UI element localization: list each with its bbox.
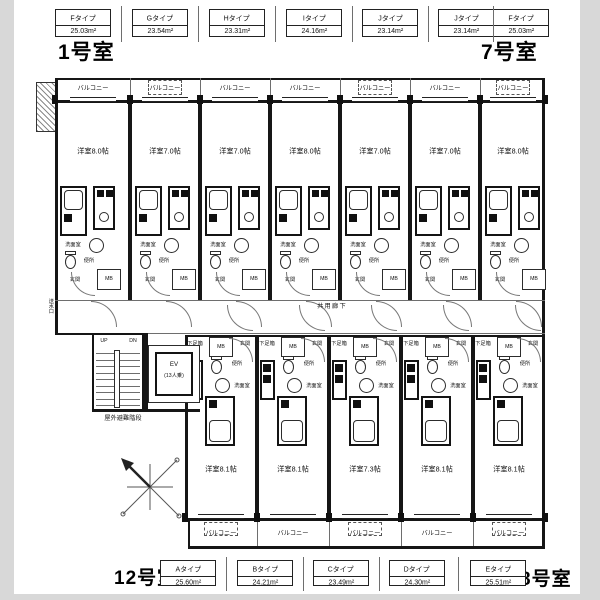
- unit-type-area: 23.49m²: [328, 579, 354, 587]
- type-separator-line: [303, 557, 304, 591]
- unit-type-label: Aタイプ: [175, 563, 201, 574]
- balcony-window: [270, 514, 316, 519]
- unit-type-area: 24.16m²: [301, 28, 327, 36]
- unit-type-label: Iタイプ: [303, 12, 326, 23]
- meter-box-label: MB: [320, 276, 328, 281]
- bath-fixture: [209, 214, 217, 222]
- ac-unit-outline: [496, 80, 530, 95]
- left-connect-wall: [55, 333, 92, 335]
- toilet-label: 便所: [159, 258, 169, 263]
- balcony-label: バルコニー: [290, 86, 321, 92]
- wash-basin: [514, 238, 529, 253]
- top-type-name-row: Iタイプ: [287, 10, 341, 26]
- unit-type-label: Hタイプ: [224, 12, 250, 23]
- unit-type-area: 24.21m²: [252, 579, 278, 587]
- stove-burner: [407, 364, 415, 372]
- stove-burner: [461, 190, 468, 197]
- wall-pier: [52, 95, 58, 104]
- door-swing-arc: [227, 305, 253, 331]
- unit-divider-wall: [478, 100, 482, 300]
- top-type-box: Fタイプ25.03m²: [493, 9, 549, 37]
- outer-wall-right: [542, 78, 545, 548]
- top-type-box: Gタイプ23.54m²: [132, 9, 188, 37]
- balcony-side-wall: [188, 520, 190, 548]
- balcony-label: バルコニー: [430, 86, 461, 92]
- balcony-side-wall: [543, 520, 545, 548]
- room-label: 洋室7.3帖: [349, 466, 381, 473]
- unit-divider-wall: [399, 335, 403, 518]
- balcony-window: [198, 514, 244, 519]
- stove-burner: [321, 190, 328, 197]
- toilet-bowl: [140, 255, 151, 269]
- stove-burner: [452, 190, 459, 197]
- kitchen-sink: [524, 212, 534, 222]
- type-separator-line: [352, 6, 353, 42]
- top-type-area-row: 23.54m²: [133, 26, 187, 37]
- door-swing-arc: [443, 305, 469, 331]
- type-separator-line: [275, 6, 276, 42]
- wall-pier-stub: [36, 82, 56, 132]
- stove-burner: [172, 190, 179, 197]
- washroom-label: 洗面室: [234, 383, 250, 388]
- kitchen-sink: [244, 212, 254, 222]
- outdoor-stairs-label: 屋外避難階段: [104, 416, 141, 422]
- balcony-divider: [401, 520, 402, 546]
- balcony-label: バルコニー: [220, 86, 251, 92]
- washroom-label: 洗面室: [450, 383, 466, 388]
- unit-divider-wall: [198, 100, 202, 300]
- stove-burner: [106, 190, 113, 197]
- stove-burner: [407, 375, 415, 383]
- room-label: 洋室8.0帖: [77, 148, 109, 155]
- bath-fixture: [425, 400, 433, 408]
- meter-box-label: MB: [105, 276, 113, 281]
- bath-fixture: [353, 400, 361, 408]
- toilet-label: 便所: [520, 361, 530, 366]
- outer-wall-top: [55, 78, 545, 80]
- stove-burner: [263, 375, 271, 383]
- toilet-label: 便所: [304, 361, 314, 366]
- bathtub: [209, 420, 231, 442]
- bottom-type-box: Aタイプ25.60m²: [160, 560, 216, 586]
- type-separator-line: [198, 6, 199, 42]
- room-label: 洋室7.0帖: [429, 148, 461, 155]
- kitchen-sink: [174, 212, 184, 222]
- door-swing-arc: [146, 272, 170, 296]
- bottom-type-area-row: 25.51m²: [471, 577, 525, 588]
- bottom-type-box: Bタイプ24.21m²: [237, 560, 293, 586]
- unit-type-label: Fタイプ: [70, 12, 95, 23]
- unit-divider-wall: [327, 335, 331, 518]
- bottom-type-name-row: Eタイプ: [471, 561, 525, 577]
- top-type-name-row: Fタイプ: [56, 10, 110, 26]
- toilet-label: 便所: [439, 258, 449, 263]
- balcony-label: バルコニー: [422, 531, 453, 537]
- top-type-box: Jタイプ23.14m²: [438, 9, 494, 37]
- balcony-window: [486, 514, 532, 519]
- door-swing-arc: [496, 272, 520, 296]
- bath-fixture: [349, 214, 357, 222]
- top-type-name-row: Gタイプ: [133, 10, 187, 26]
- toilet-bowl: [499, 360, 510, 374]
- balcony-window: [70, 97, 116, 102]
- meter-box-label: MB: [460, 276, 468, 281]
- bottom-type-box: Cタイプ23.49m²: [313, 560, 369, 586]
- ac-unit-outline: [148, 80, 182, 95]
- wall-pier: [127, 95, 133, 104]
- stove-burner: [522, 190, 529, 197]
- toilet-label: 便所: [369, 258, 379, 263]
- room-label: 洋室7.0帖: [219, 148, 251, 155]
- top-type-box: Hタイプ23.31m²: [209, 9, 265, 37]
- wash-basin: [431, 378, 446, 393]
- wall-pier: [337, 95, 343, 104]
- elevator-capacity-label: (13人乗): [164, 373, 184, 378]
- top-type-name-row: Jタイプ: [363, 10, 417, 26]
- toilet-bowl: [280, 255, 291, 269]
- washroom-label: 洗面室: [522, 383, 538, 388]
- door-swing-arc: [216, 272, 240, 296]
- top-type-box: Jタイプ23.14m²: [362, 9, 418, 37]
- type-separator-line: [428, 6, 429, 42]
- unit-type-area: 25.60m²: [175, 579, 201, 587]
- bottom-type-area-row: 24.21m²: [238, 577, 292, 588]
- top-type-area-row: 24.16m²: [287, 26, 341, 37]
- wash-basin: [89, 238, 104, 253]
- wash-basin: [374, 238, 389, 253]
- unit-type-area: 24.30m²: [404, 579, 430, 587]
- bathtub: [489, 190, 508, 210]
- type-separator-line: [458, 557, 459, 591]
- door-swing-arc: [91, 301, 117, 327]
- door-swing-arc: [356, 272, 380, 296]
- toilet-label: 便所: [84, 258, 94, 263]
- toilet-bowl: [420, 255, 431, 269]
- bath-fixture: [419, 214, 427, 222]
- bottom-type-area-row: 25.60m²: [161, 577, 215, 588]
- unit-type-label: Fタイプ: [508, 12, 533, 23]
- bath-fixture: [64, 214, 72, 222]
- balcony-window: [282, 97, 328, 102]
- balcony-divider: [257, 520, 258, 546]
- balcony-window: [212, 97, 258, 102]
- ac-unit-outline: [492, 522, 526, 536]
- stairs-down-label: DN: [129, 338, 137, 343]
- wall-pier: [197, 95, 203, 104]
- kitchen-sink: [384, 212, 394, 222]
- top-type-name-row: Hタイプ: [210, 10, 264, 26]
- unit-type-area: 25.03m²: [508, 28, 534, 36]
- top-type-area-row: 23.31m²: [210, 26, 264, 37]
- unit-divider-wall: [268, 100, 272, 300]
- door-swing-arc: [426, 272, 450, 296]
- meter-box-label: MB: [289, 344, 297, 349]
- bath-fixture: [209, 400, 217, 408]
- bottom-type-box: Dタイプ24.30m²: [389, 560, 445, 586]
- room-label: 洋室8.1帖: [493, 466, 525, 473]
- toilet-label: 便所: [232, 361, 242, 366]
- balcony-window: [142, 97, 188, 102]
- toilet-label: 便所: [229, 258, 239, 263]
- toilet-bowl: [211, 360, 222, 374]
- top-type-box: Fタイプ25.03m²: [55, 9, 111, 37]
- unit-type-label: Eタイプ: [485, 563, 511, 574]
- unit-type-area: 23.14m²: [377, 28, 403, 36]
- wash-basin: [164, 238, 179, 253]
- unit-type-area: 23.31m²: [224, 28, 250, 36]
- unit-type-label: Cタイプ: [328, 563, 354, 574]
- washroom-label: 洗面室: [280, 242, 296, 247]
- room-label: 洋室7.0帖: [149, 148, 181, 155]
- door-swing-arc: [166, 301, 192, 327]
- toilet-label: 便所: [376, 361, 386, 366]
- shoe-box-label: 下足箱: [259, 341, 275, 346]
- toilet-label: 便所: [509, 258, 519, 263]
- wash-basin: [304, 238, 319, 253]
- wall-pier: [398, 513, 404, 522]
- bathtub: [281, 420, 303, 442]
- room-label: 洋室8.1帖: [421, 466, 453, 473]
- bathtub: [353, 420, 375, 442]
- stove-burner: [479, 364, 487, 372]
- bathtub: [64, 190, 83, 210]
- balcony-divider: [329, 520, 330, 546]
- type-separator-line: [379, 557, 380, 591]
- meter-box-label: MB: [180, 276, 188, 281]
- shoe-box-label: 下足箱: [331, 341, 347, 346]
- toilet-label: 便所: [448, 361, 458, 366]
- bath-fixture: [139, 214, 147, 222]
- toilet-bowl: [350, 255, 361, 269]
- washroom-label: 洗面室: [306, 383, 322, 388]
- stove-burner: [242, 190, 249, 197]
- bottom-type-name-row: Bタイプ: [238, 561, 292, 577]
- meter-box-label: MB: [217, 344, 225, 349]
- meter-box-label: MB: [530, 276, 538, 281]
- unit-type-area: 23.54m²: [147, 28, 173, 36]
- top-type-name-row: Jタイプ: [439, 10, 493, 26]
- elevator-label: EV: [170, 362, 178, 368]
- meter-box-label: MB: [250, 276, 258, 281]
- unit-type-label: Jタイプ: [378, 12, 403, 23]
- balcony-divider: [473, 520, 474, 546]
- wall-pier: [407, 95, 413, 104]
- type-separator-line: [226, 557, 227, 591]
- washroom-label: 洗面室: [65, 242, 81, 247]
- toilet-bowl: [490, 255, 501, 269]
- bottom-type-name-row: Aタイプ: [161, 561, 215, 577]
- bathtub: [349, 190, 368, 210]
- room-label: 洋室8.0帖: [497, 148, 529, 155]
- stove-burner: [181, 190, 188, 197]
- room-label: 洋室8.1帖: [205, 466, 237, 473]
- ac-unit-outline: [348, 522, 382, 536]
- compass-icon: [115, 452, 185, 522]
- stove-burner: [97, 190, 104, 197]
- stair-base-wall: [92, 409, 200, 412]
- top-type-area-row: 23.14m²: [363, 26, 417, 37]
- outer-wall-bottom: [188, 546, 545, 549]
- stair-rail: [114, 350, 120, 408]
- bottom-type-box: Eタイプ25.51m²: [470, 560, 526, 586]
- washroom-label: 洗面室: [350, 242, 366, 247]
- washroom-label: 洗面室: [140, 242, 156, 247]
- wall-pier: [254, 513, 260, 522]
- wash-basin: [444, 238, 459, 253]
- stairs-up-label: UP: [100, 338, 107, 343]
- wall-pier: [477, 95, 483, 104]
- balcony-label: バルコニー: [278, 531, 309, 537]
- room-label: 洋室7.0帖: [359, 148, 391, 155]
- wash-basin: [287, 378, 302, 393]
- door-swing-arc: [371, 305, 397, 331]
- stove-burner: [312, 190, 319, 197]
- bathtub: [139, 190, 158, 210]
- washroom-label: 洗面室: [378, 383, 394, 388]
- unit-divider-wall: [408, 100, 412, 300]
- bathtub: [425, 420, 447, 442]
- stove-burner: [251, 190, 258, 197]
- shoe-box-label: 下足箱: [403, 341, 419, 346]
- standpipe-label: 送水口: [47, 298, 52, 314]
- toilet-bowl: [355, 360, 366, 374]
- meter-box-label: MB: [505, 344, 513, 349]
- balcony-window: [342, 514, 388, 519]
- wash-basin: [234, 238, 249, 253]
- door-swing-arc: [71, 272, 95, 296]
- bathtub: [497, 420, 519, 442]
- door-swing-arc: [286, 272, 310, 296]
- kitchen-sink: [454, 212, 464, 222]
- unit-type-label: Jタイプ: [454, 12, 479, 23]
- unit-type-area: 25.03m²: [70, 28, 96, 36]
- room-label: 洋室8.0帖: [289, 148, 321, 155]
- unit-divider-wall: [255, 335, 259, 518]
- corridor-line-bottom: [90, 333, 545, 334]
- stove-burner: [479, 375, 487, 383]
- stove-burner: [335, 364, 343, 372]
- bottom-type-name-row: Dタイプ: [390, 561, 444, 577]
- top-type-box: Iタイプ24.16m²: [286, 9, 342, 37]
- stove-burner: [531, 190, 538, 197]
- unit-type-area: 23.14m²: [453, 28, 479, 36]
- outer-wall-left: [55, 78, 58, 335]
- wall-pier: [542, 95, 548, 104]
- stove-burner: [263, 364, 271, 372]
- balcony-window: [352, 97, 398, 102]
- wash-basin: [503, 378, 518, 393]
- wash-basin: [359, 378, 374, 393]
- room-label: 洋室8.1帖: [277, 466, 309, 473]
- corridor-line-top: [55, 300, 545, 301]
- kitchen-sink: [314, 212, 324, 222]
- type-separator-line: [121, 6, 122, 42]
- bath-fixture: [497, 400, 505, 408]
- ac-unit-outline: [204, 522, 238, 536]
- toilet-bowl: [210, 255, 221, 269]
- top-type-area-row: 25.03m²: [56, 26, 110, 37]
- meter-box-label: MB: [433, 344, 441, 349]
- floorplan-drawing: バルコニー洋室8.0帖洗面室便所MB玄関バルコニー洋室7.0帖廊下洗面室便所MB…: [0, 0, 600, 600]
- floorplan-page: 1号室 7号室 12号室 8号室 バルコニー洋室8.: [0, 0, 600, 600]
- unit-type-label: Dタイプ: [404, 563, 430, 574]
- toilet-bowl: [427, 360, 438, 374]
- bath-fixture: [281, 400, 289, 408]
- bath-fixture: [279, 214, 287, 222]
- bottom-type-area-row: 24.30m²: [390, 577, 444, 588]
- toilet-bowl: [283, 360, 294, 374]
- unit-divider-wall: [471, 335, 475, 518]
- bathtub: [419, 190, 438, 210]
- toilet-bowl: [65, 255, 76, 269]
- type-separator-line: [493, 6, 494, 42]
- meter-box-label: MB: [390, 276, 398, 281]
- balcony-window: [422, 97, 468, 102]
- unit-type-label: Bタイプ: [252, 563, 278, 574]
- washroom-label: 洗面室: [210, 242, 226, 247]
- top-type-area-row: 25.03m²: [494, 26, 548, 37]
- unit-divider-wall: [128, 100, 132, 300]
- balcony-window: [490, 97, 536, 102]
- unit-type-area: 25.51m²: [485, 579, 511, 587]
- stove-burner: [335, 375, 343, 383]
- door-swing-arc: [515, 305, 541, 331]
- meter-box-label: MB: [361, 344, 369, 349]
- wash-basin: [215, 378, 230, 393]
- washroom-label: 洗面室: [420, 242, 436, 247]
- balcony-label: バルコニー: [77, 86, 108, 92]
- top-type-name-row: Fタイプ: [494, 10, 548, 26]
- bath-fixture: [489, 214, 497, 222]
- shoe-box-label: 下足箱: [475, 341, 491, 346]
- wall-pier: [470, 513, 476, 522]
- bathtub: [209, 190, 228, 210]
- washroom-label: 洗面室: [490, 242, 506, 247]
- top-type-area-row: 23.14m²: [439, 26, 493, 37]
- shared-corridor-label: 共用廊下: [317, 304, 347, 310]
- bottom-type-name-row: Cタイプ: [314, 561, 368, 577]
- stove-burner: [391, 190, 398, 197]
- ac-unit-outline: [358, 80, 392, 95]
- bathtub: [279, 190, 298, 210]
- bottom-type-area-row: 23.49m²: [314, 577, 368, 588]
- kitchen-sink: [99, 212, 109, 222]
- stove-burner: [382, 190, 389, 197]
- toilet-label: 便所: [299, 258, 309, 263]
- wall-pier: [326, 513, 332, 522]
- balcony-window: [414, 514, 460, 519]
- unit-divider-wall: [338, 100, 342, 300]
- wall-pier: [267, 95, 273, 104]
- unit-type-label: Gタイプ: [147, 12, 173, 23]
